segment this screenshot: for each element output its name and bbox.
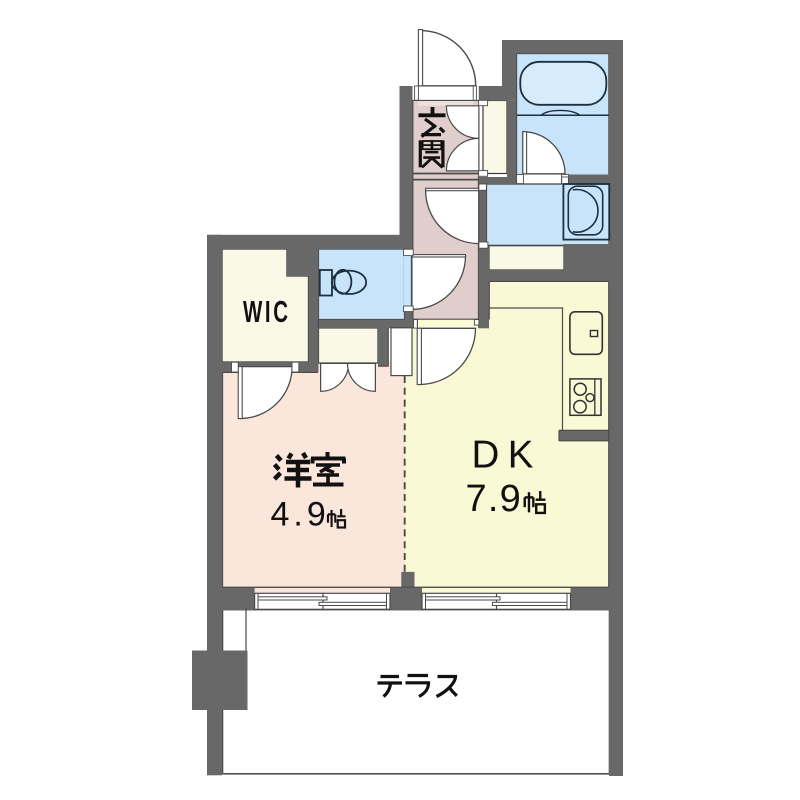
svg-text:4.9: 4.9 <box>271 496 330 534</box>
svg-text:7.9: 7.9 <box>466 478 522 520</box>
svg-text:DK: DK <box>472 434 542 477</box>
svg-text:WIC: WIC <box>243 296 291 329</box>
